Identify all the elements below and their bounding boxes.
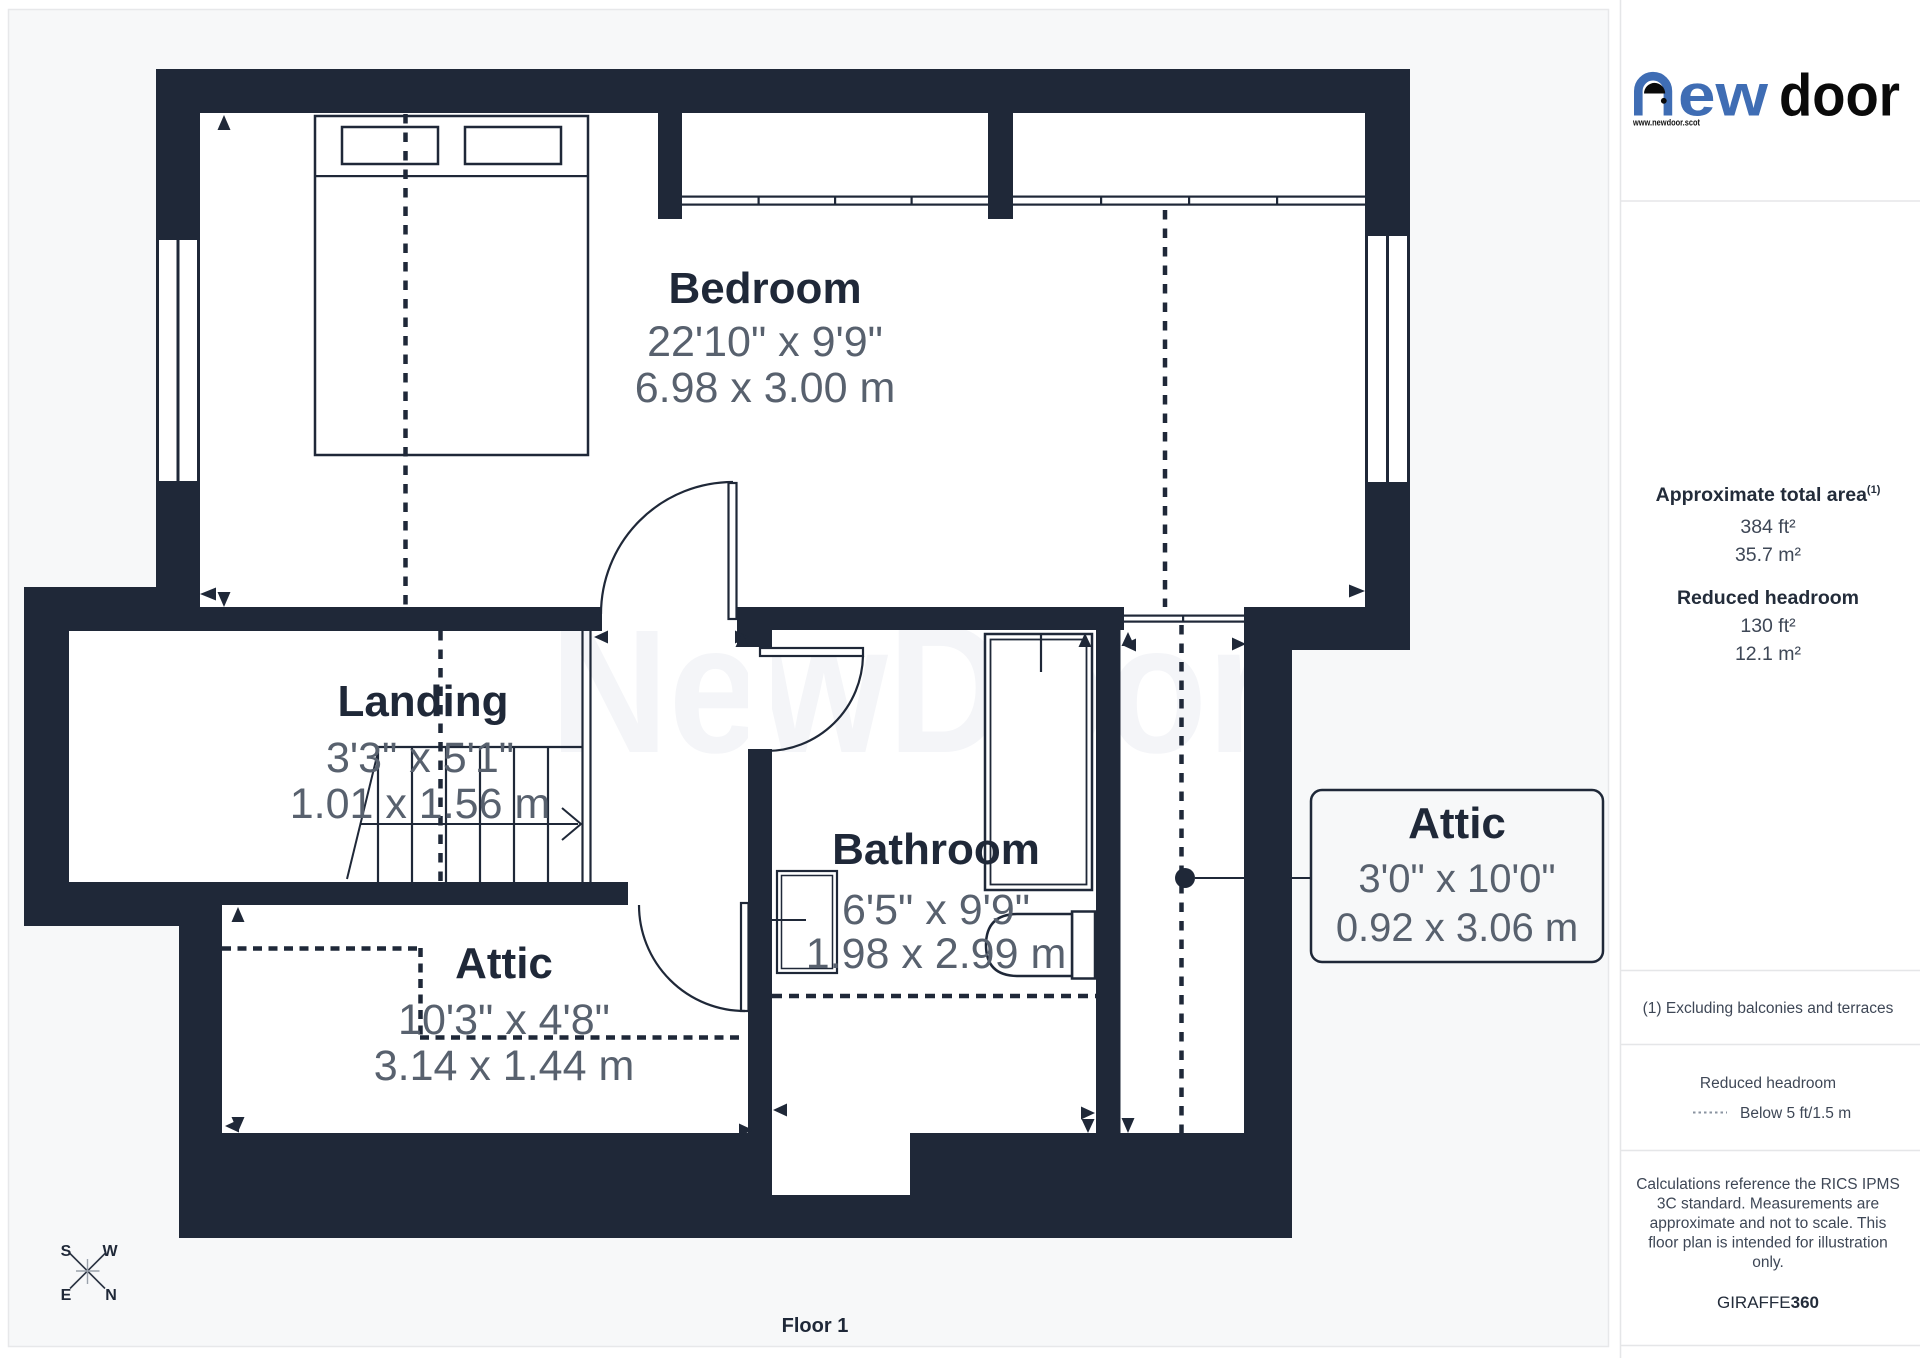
svg-text:130 ft²: 130 ft²: [1740, 615, 1796, 637]
svg-text:22'10" x 9'9": 22'10" x 9'9": [647, 318, 883, 366]
svg-text:Floor 1: Floor 1: [782, 1315, 849, 1337]
svg-text:Calculations reference the RIC: Calculations reference the RICS IPMS: [1636, 1176, 1900, 1193]
svg-text:1.01 x 1.56 m: 1.01 x 1.56 m: [290, 780, 551, 828]
svg-text:www.newdoor.scot: www.newdoor.scot: [1632, 118, 1700, 128]
svg-text:door: door: [1779, 63, 1900, 129]
svg-text:3.14 x 1.44 m: 3.14 x 1.44 m: [374, 1042, 635, 1090]
svg-text:E: E: [61, 1287, 72, 1304]
svg-text:Reduced headroom: Reduced headroom: [1677, 587, 1859, 609]
svg-text:floor plan is intended for ill: floor plan is intended for illustration: [1648, 1235, 1888, 1252]
svg-text:35.7 m²: 35.7 m²: [1735, 544, 1802, 566]
svg-text:W: W: [102, 1243, 118, 1260]
svg-text:GIRAFFE360: GIRAFFE360: [1717, 1293, 1819, 1312]
svg-text:3'3" x 5'1": 3'3" x 5'1": [326, 734, 514, 782]
svg-text:N: N: [105, 1287, 117, 1304]
svg-text:1.98 x 2.99 m: 1.98 x 2.99 m: [806, 930, 1067, 978]
svg-text:approximate and not to scale.: approximate and not to scale. This: [1650, 1215, 1887, 1232]
svg-text:Bathroom: Bathroom: [832, 825, 1040, 874]
svg-text:6'5" x 9'9": 6'5" x 9'9": [842, 886, 1030, 934]
svg-text:S: S: [61, 1243, 72, 1260]
svg-text:6.98 x 3.00 m: 6.98 x 3.00 m: [635, 364, 896, 412]
svg-text:Bedroom: Bedroom: [668, 264, 861, 313]
svg-text:Reduced headroom: Reduced headroom: [1700, 1075, 1836, 1092]
svg-text:384 ft²: 384 ft²: [1740, 516, 1796, 538]
svg-text:Landing: Landing: [337, 677, 508, 726]
svg-text:3'0" x 10'0": 3'0" x 10'0": [1358, 857, 1555, 901]
svg-text:12.1 m²: 12.1 m²: [1735, 643, 1802, 665]
svg-text:only.: only.: [1752, 1254, 1784, 1271]
svg-text:Below 5 ft/1.5 m: Below 5 ft/1.5 m: [1740, 1105, 1851, 1122]
svg-text:Attic: Attic: [1408, 799, 1506, 848]
svg-text:Approximate total area(1): Approximate total area(1): [1656, 484, 1881, 506]
svg-text:3C standard. Measurements are: 3C standard. Measurements are: [1657, 1196, 1879, 1213]
svg-text:(1) Excluding balconies and te: (1) Excluding balconies and terraces: [1643, 1000, 1894, 1017]
svg-text:10'3" x 4'8": 10'3" x 4'8": [398, 996, 610, 1044]
svg-text:Attic: Attic: [455, 939, 553, 988]
svg-text:0.92 x 3.06 m: 0.92 x 3.06 m: [1336, 906, 1578, 950]
